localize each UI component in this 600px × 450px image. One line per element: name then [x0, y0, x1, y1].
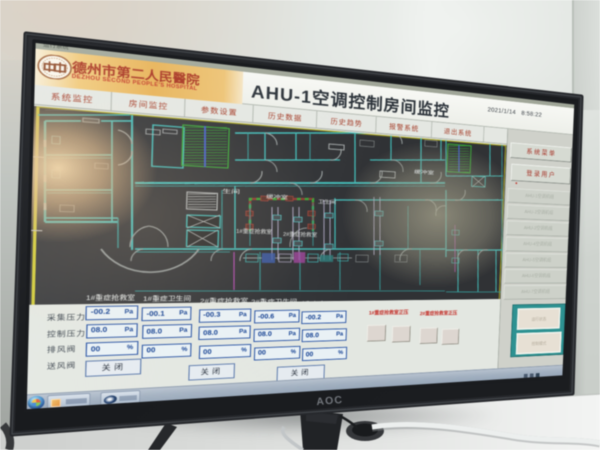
svg-text:AOC: AOC [316, 394, 344, 408]
